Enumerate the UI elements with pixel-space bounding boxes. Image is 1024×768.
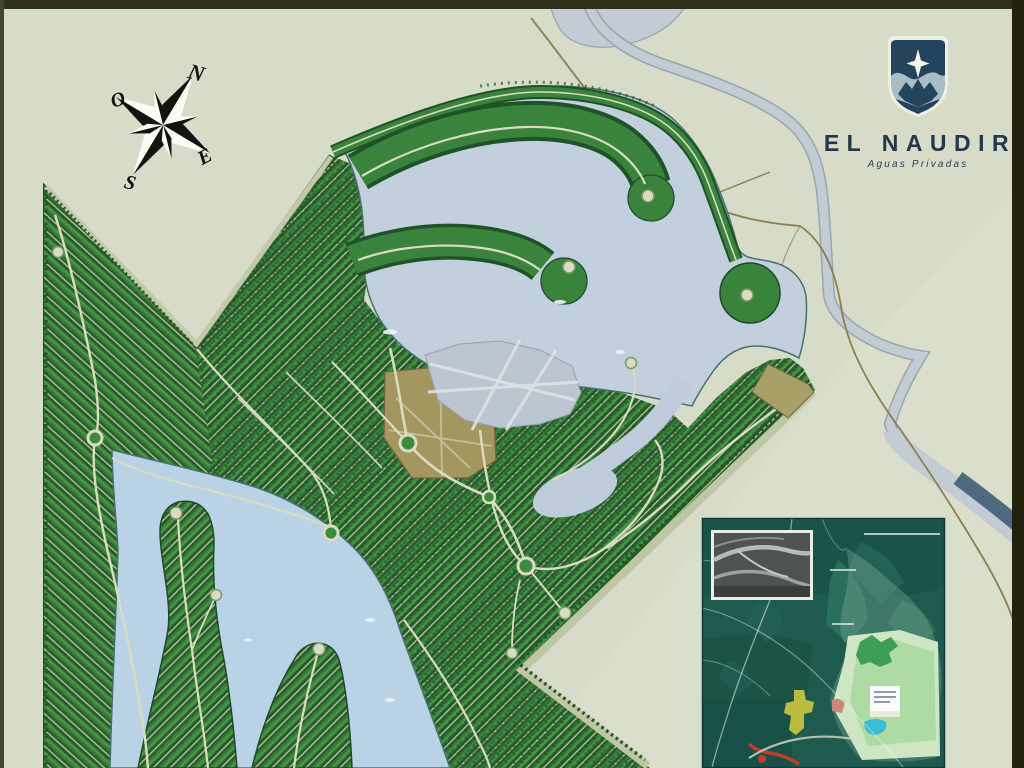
svg-text:EL NAUDIR: EL NAUDIR xyxy=(824,130,1016,156)
svg-text:Aguas Privadas: Aguas Privadas xyxy=(867,159,969,170)
